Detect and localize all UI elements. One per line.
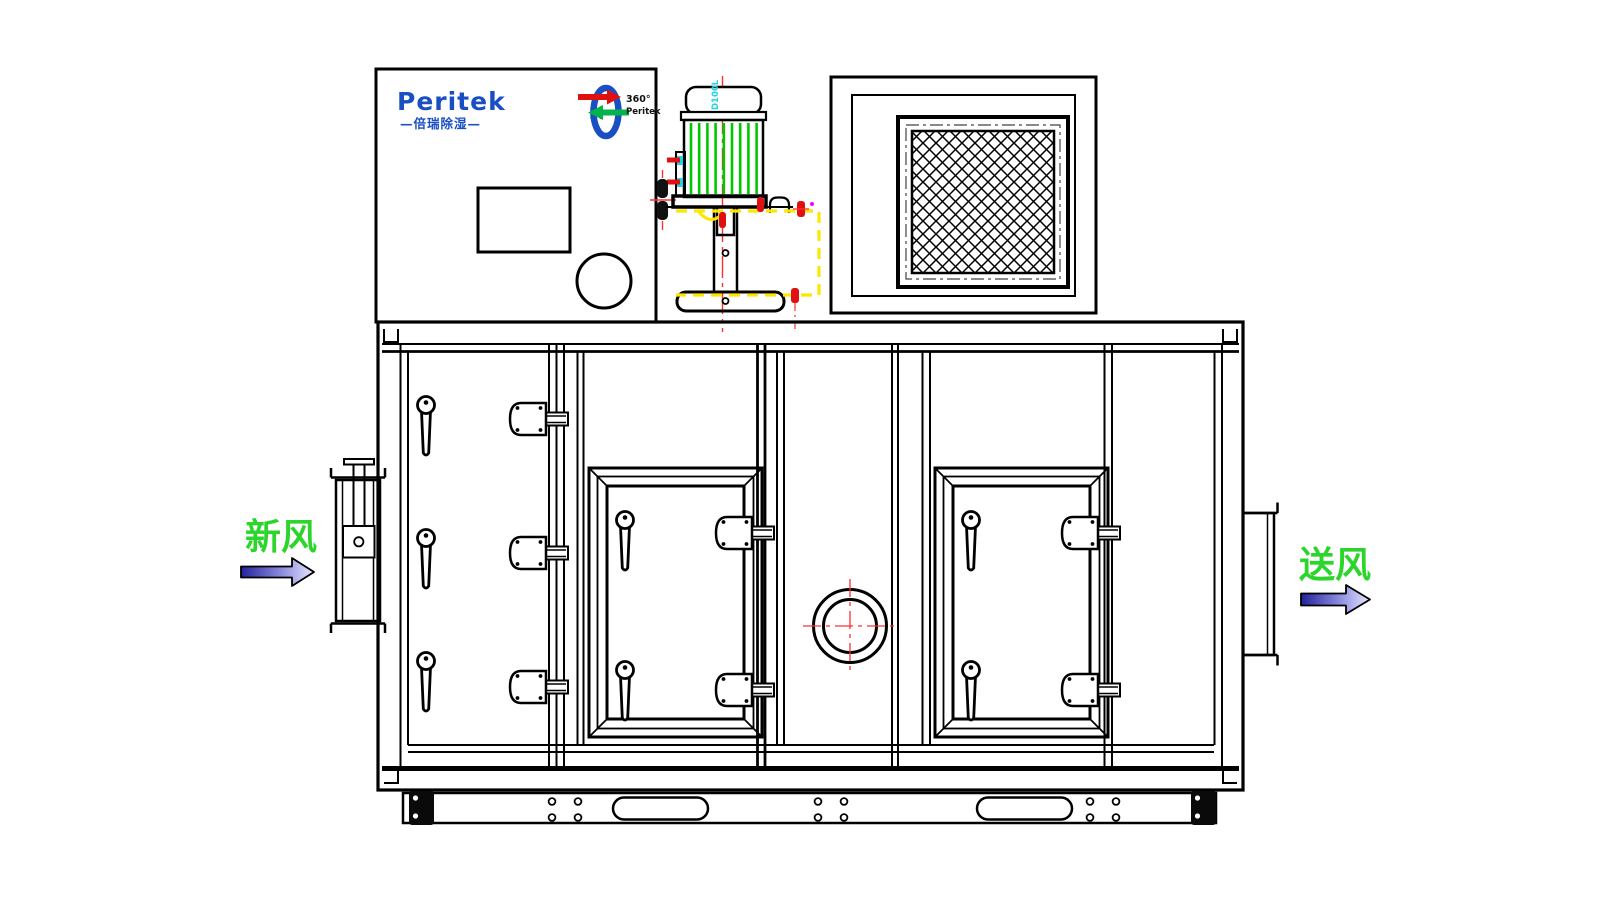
motor-fan-cap (686, 87, 761, 114)
magenta-marker (810, 202, 814, 206)
outlet-arrow-icon (1301, 585, 1370, 614)
corner-notch (1223, 329, 1237, 342)
forklift-slot (977, 798, 1072, 820)
corner-notch (384, 329, 398, 342)
badge-brand: Peritek (626, 107, 661, 117)
door-handle (963, 512, 980, 571)
brand-logo-subtext: —倍瑞除湿— (400, 116, 481, 131)
inlet-arrow-icon (241, 558, 314, 586)
supply-air-flange (1243, 503, 1278, 666)
door-latch (510, 537, 568, 569)
corner-notch (384, 769, 398, 783)
drive-motor-assembly: D100L (650, 76, 819, 332)
door-latch (510, 403, 568, 435)
rotation-badge-icon: M 360° Peritek (578, 88, 661, 136)
motor-base-plate (673, 196, 766, 207)
corner-notch (1223, 769, 1237, 783)
base-foot-left (409, 791, 434, 825)
outlet-label: 送风 (1299, 545, 1371, 586)
damper-actuator-box (343, 526, 375, 558)
brand-logo-text: Peritek (397, 87, 506, 116)
sight-glass (803, 579, 897, 674)
door-handle (617, 512, 634, 571)
filter-box (831, 77, 1096, 313)
door-handle (418, 397, 435, 456)
base-frame (403, 791, 1216, 825)
control-box: Peritek —倍瑞除湿— M 360° Peritek (376, 69, 661, 322)
drawing-canvas: Peritek —倍瑞除湿— M 360° Peritek D100L (0, 0, 1613, 897)
seal-outline-yellow (676, 211, 819, 295)
forklift-slot (613, 798, 708, 820)
door-handle (617, 662, 634, 721)
inspection-hole (577, 254, 631, 308)
door-latch (510, 671, 568, 703)
door-handle (418, 530, 435, 589)
inlet-label: 新风 (245, 517, 317, 558)
control-panel-cutout (478, 188, 570, 252)
motor-frame-label: D100L (711, 79, 721, 110)
filter-mesh (912, 131, 1054, 273)
motor-fins (691, 123, 757, 194)
base-foot-right (1191, 791, 1216, 825)
door-handle (963, 662, 980, 721)
cabinet-body (378, 322, 1243, 790)
section-dividers (549, 344, 1112, 768)
damper-handle-bar (344, 459, 374, 465)
badge-degrees: 360° (626, 94, 651, 105)
door-handle (418, 653, 435, 712)
cabinet-outline (378, 322, 1243, 790)
